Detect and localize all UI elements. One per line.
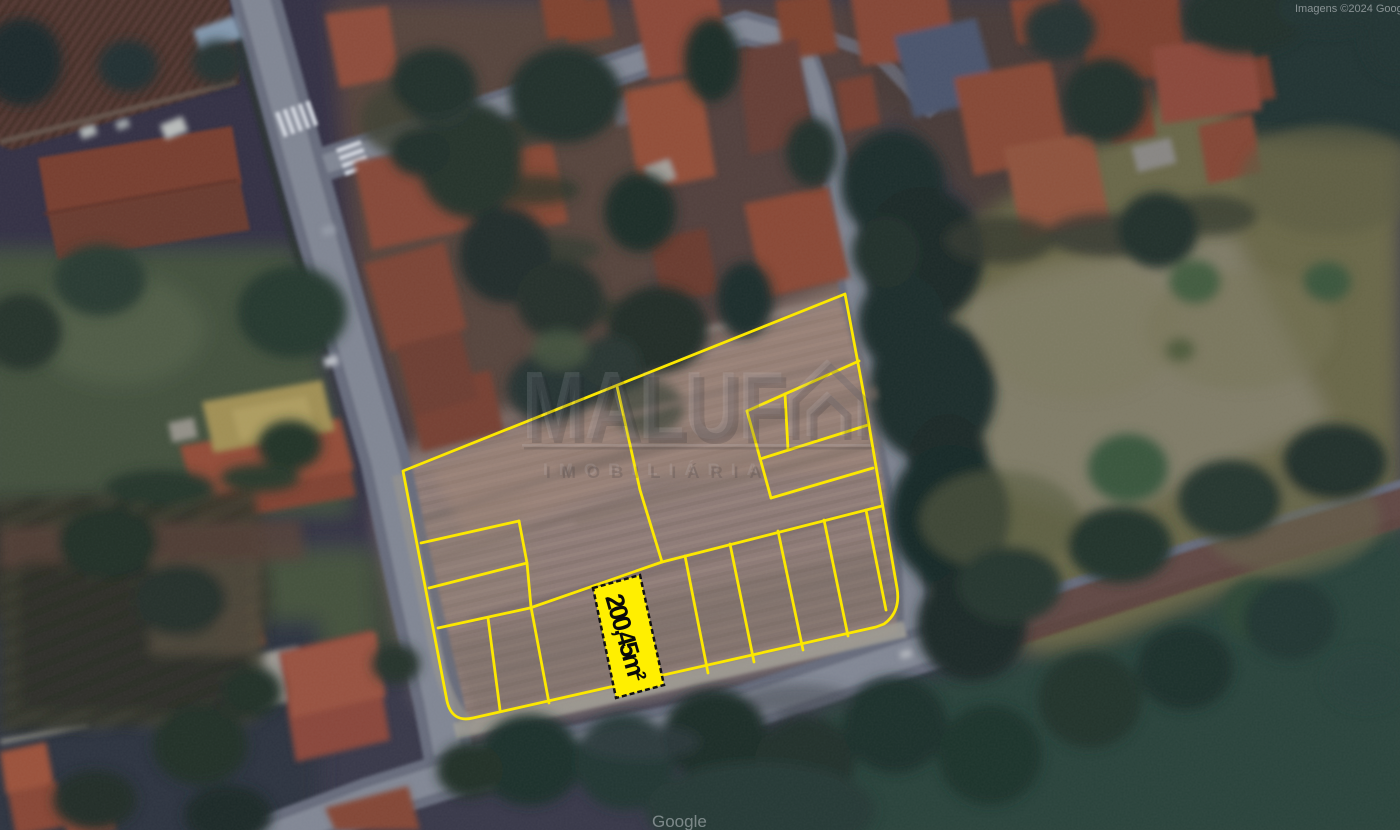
svg-text:Google: Google bbox=[652, 812, 707, 830]
svg-text:Imagens ©2024 Google: Imagens ©2024 Google bbox=[1295, 3, 1400, 15]
svg-text:IMOBILIÁRIA: IMOBILIÁRIA bbox=[546, 463, 773, 482]
